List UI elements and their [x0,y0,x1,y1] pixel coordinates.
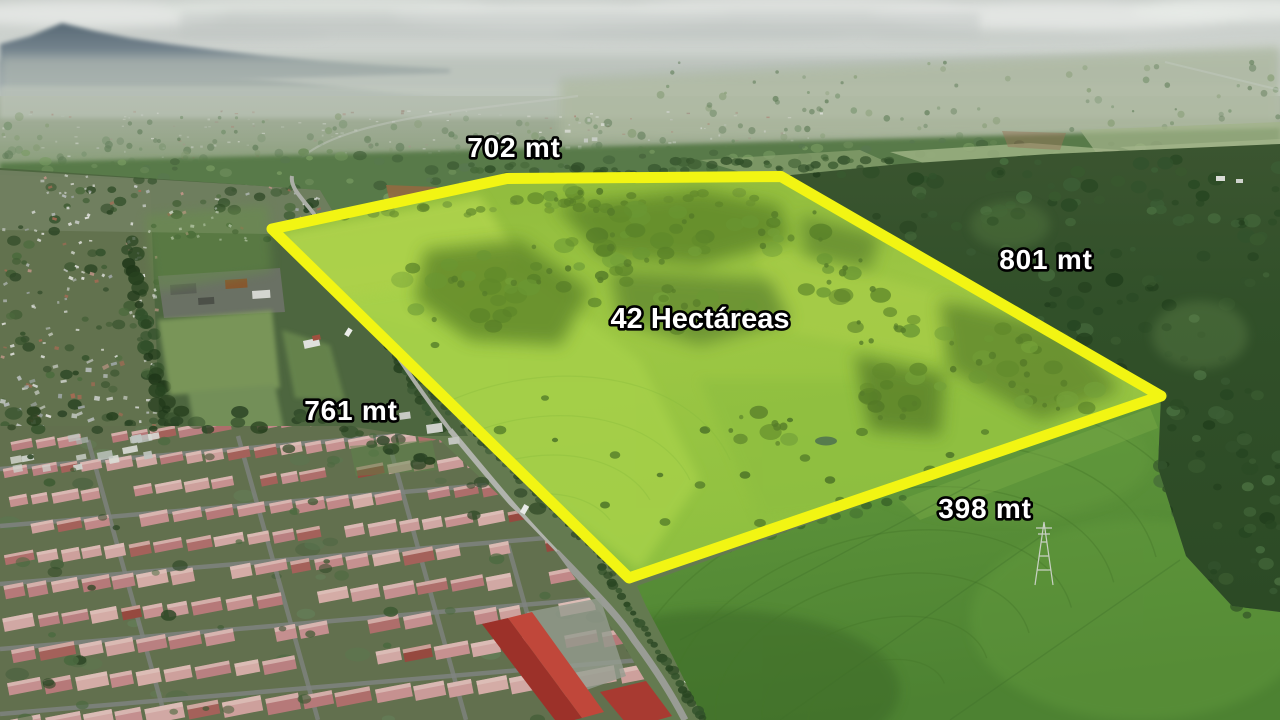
svg-text:398 mt: 398 mt [938,493,1032,524]
svg-text:42 Hectáreas: 42 Hectáreas [611,303,790,335]
svg-text:761 mt: 761 mt [304,395,398,426]
svg-text:702 mt: 702 mt [467,132,561,163]
svg-text:801 mt: 801 mt [999,244,1093,275]
